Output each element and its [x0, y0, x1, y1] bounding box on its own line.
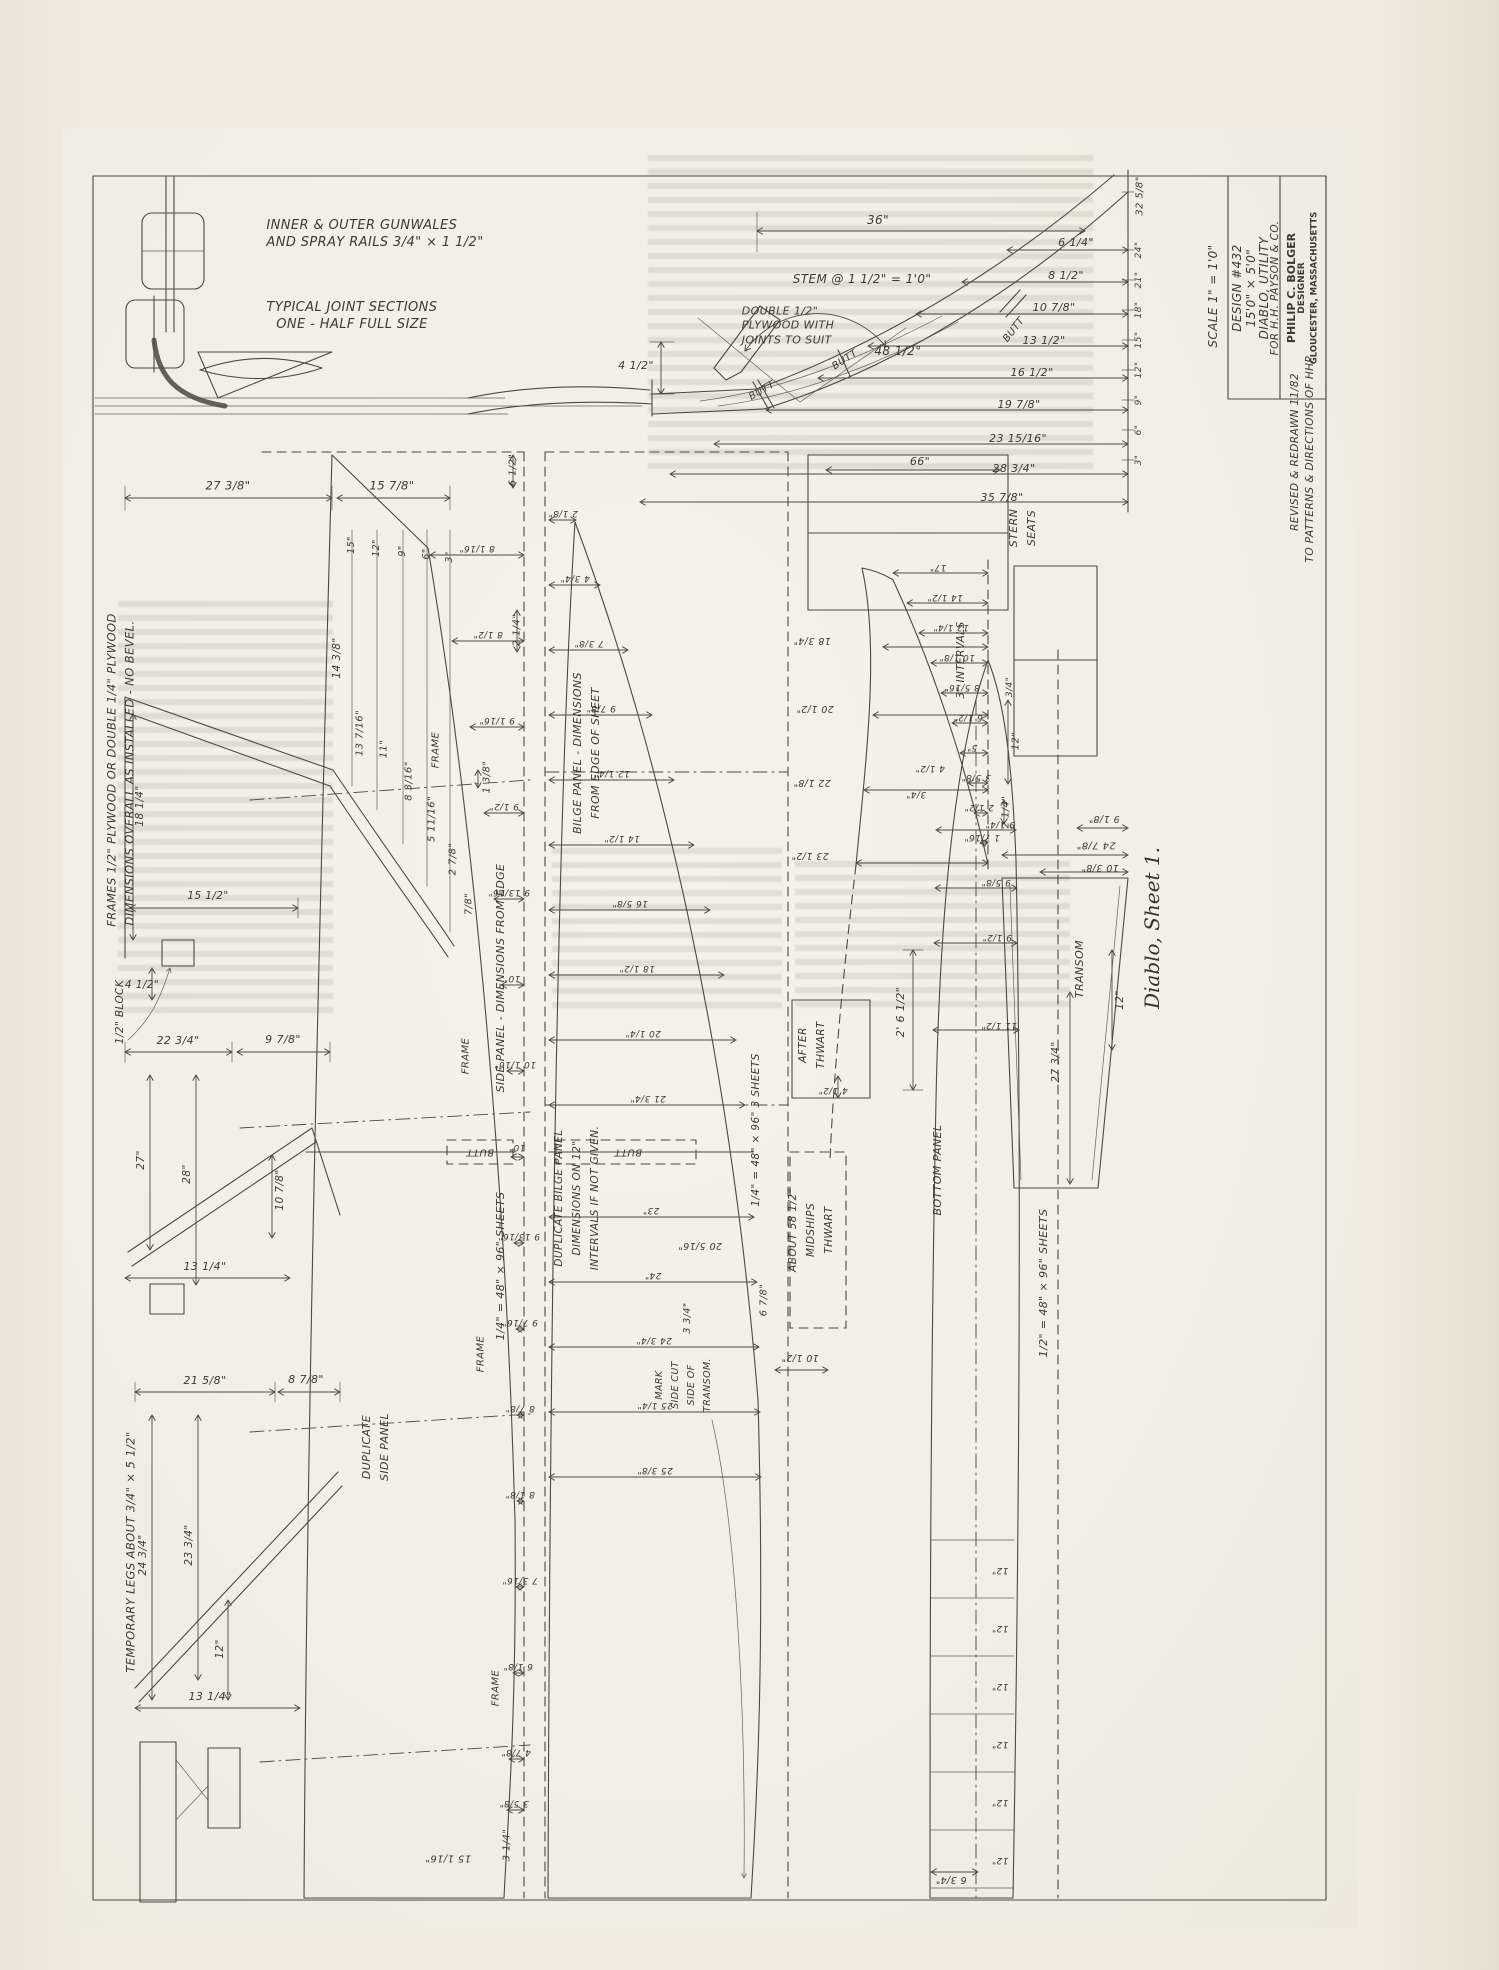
ruler-mark: 6" — [1134, 425, 1146, 436]
figure-caption: Diablo, Sheet 1. — [1140, 847, 1164, 1009]
thwart-label: ABOUT 58 1/2" — [787, 1188, 801, 1272]
dim: 4 1/2" — [125, 979, 159, 993]
dim: 9 7/8" — [265, 1033, 301, 1047]
dim: 10 7/8" — [274, 1169, 288, 1210]
dim: 12" — [992, 1795, 1009, 1807]
dim: 9 1/8" — [1088, 812, 1119, 824]
labels-layer: INNER & OUTER GUNWALES AND SPRAY RAILS 3… — [0, 0, 1499, 1970]
book-page-background: INNER & OUTER GUNWALES AND SPRAY RAILS 3… — [0, 0, 1499, 1970]
dim: 7 3/8" — [574, 636, 604, 648]
dim: 14 3/8" — [331, 637, 345, 678]
panel-label: BILGE PANEL - DIMENSIONS — [571, 672, 585, 834]
dim: 6 7/8" — [758, 1284, 771, 1317]
dim: 10" — [504, 971, 521, 983]
dim: 4 1/2" — [618, 359, 654, 373]
frame-label: FRAME — [475, 1336, 488, 1373]
dim: 24 3/4" — [636, 1333, 672, 1345]
dim: 2 1/4" — [511, 614, 524, 647]
panel-label: SIDE PANEL — [378, 1413, 392, 1481]
dim: 24 3/4" — [137, 1534, 151, 1575]
dim: 4 1/2" — [818, 1083, 848, 1095]
dim: 8 1/16" — [459, 541, 495, 553]
dim: 28" — [181, 1164, 195, 1183]
dim: 28 3/4" — [992, 462, 1035, 476]
dim: 3/4" — [1005, 677, 1017, 697]
dim: 9 13/16" — [488, 885, 530, 897]
dim: 15 1/16" — [425, 1852, 471, 1865]
dim: 2 1/2" — [964, 800, 994, 812]
dim: 5" — [967, 740, 978, 752]
dim: 13 1/2" — [1022, 334, 1065, 348]
butt-label: BUTT — [747, 378, 778, 403]
dim: 12" — [992, 1737, 1009, 1749]
seats-label: STERN — [1007, 509, 1021, 548]
dim: 13 1/4" — [188, 1690, 231, 1704]
dim: 24" — [645, 1268, 662, 1280]
dim: 18 1/4" — [134, 785, 148, 826]
intervals-note: 3" INTERVALS — [955, 621, 969, 698]
plywood-note: DOUBLE 1/2" PLYWOOD WITH JOINTS TO SUIT — [742, 305, 835, 348]
scale-note: SCALE 1" = 1'0" — [1206, 244, 1222, 347]
designer-city: GLOUCESTER, MASSACHUSETTS — [1309, 212, 1320, 364]
ruler-mark: 3" — [1134, 455, 1146, 466]
dim: 6" — [421, 548, 433, 559]
butt-label: BUTT — [830, 347, 861, 373]
transom-label: TRANSOM — [1073, 940, 1087, 998]
dim: 7/8" — [463, 893, 476, 915]
dim: 9 1/16" — [479, 713, 515, 725]
dim: 9 1/2" — [982, 930, 1012, 942]
butt-label: BUTT — [466, 1146, 494, 1159]
ruler-mark: 18" — [1134, 302, 1146, 319]
dim: 5 11/16" — [426, 796, 439, 842]
mark-note: TRANSOM. — [702, 1358, 714, 1412]
dim: 2' 6 1/2" — [894, 987, 908, 1037]
frames-note: FRAMES 1/2" PLYWOOD OR DOUBLE 1/4" PLYWO… — [105, 613, 120, 926]
dim: 14 1/2" — [604, 831, 640, 843]
panel-label: DIMENSIONS ON 12" — [571, 1140, 585, 1255]
dim: 18 1/2" — [619, 961, 655, 973]
ruler-mark: 9" — [1134, 395, 1146, 406]
dim: 12" — [214, 1639, 228, 1658]
revision-note: TO PATTERNS & DIRECTIONS OF HHP. — [1304, 354, 1318, 563]
dim: 6 1/8" — [503, 1659, 533, 1671]
dim: 12" — [992, 1853, 1009, 1865]
dim: 27 3/8" — [206, 479, 251, 494]
frame-label: FRAME — [460, 1038, 473, 1075]
thwart-label: AFTER — [797, 1027, 811, 1063]
dim: 15" — [346, 536, 358, 554]
dim: 3 5/8" — [961, 770, 991, 782]
dim: 10 3/8" — [1081, 861, 1119, 873]
dim: 12" — [1010, 732, 1023, 751]
dim: 16 5/8" — [612, 896, 648, 908]
dim: 9 5/8" — [981, 875, 1011, 887]
dim: 8 3/16" — [403, 761, 416, 800]
dim: 12" — [992, 1563, 1009, 1575]
dim: 35 7/8" — [980, 491, 1023, 505]
dim: 10 1/2" — [781, 1351, 819, 1363]
dim: 32 5/8" — [1134, 176, 1147, 215]
ruler-mark: 15" — [1134, 332, 1146, 349]
ruler-mark: 12" — [1134, 362, 1146, 379]
dim: 3" — [444, 551, 456, 562]
dim: 8 1/8" — [505, 1487, 535, 1499]
dim: 10 7/8" — [1032, 301, 1075, 315]
dim: 24 7/8" — [1076, 839, 1115, 852]
client-line: FOR H.H. PAYSON & CO. — [1269, 221, 1283, 356]
dim: 2 1/8" — [548, 506, 578, 518]
mark-note: MARK — [654, 1370, 666, 1399]
dim: 12" — [992, 1621, 1009, 1633]
dim: 4 3/4" — [560, 571, 590, 583]
dim: 20 1/4" — [625, 1026, 661, 1038]
dim: 3 3/4" — [682, 1302, 694, 1333]
dim: 25 1/4" — [637, 1398, 673, 1410]
thwart-label: MIDSHIPS — [805, 1203, 819, 1257]
dim: 4 1/2" — [915, 761, 945, 773]
dim: 10" — [509, 1140, 526, 1152]
dim: 11 1/2" — [981, 1018, 1017, 1030]
ruler-mark: 24" — [1134, 242, 1146, 259]
panel-label: DUPLICATE BILGE PANEL — [553, 1129, 567, 1266]
dim: 14 1/2" — [927, 590, 963, 602]
dim: 6 1/2" — [507, 454, 520, 487]
dim: 8 1/2" — [1048, 269, 1084, 283]
sheet-size-label: 1/4" = 48" × 96" 3 SHEETS — [750, 1053, 764, 1206]
dim: 8 7/8" — [288, 1373, 324, 1387]
dim: 23 1/2" — [791, 849, 829, 861]
dim: 7 3/16" — [502, 1573, 538, 1585]
dim: 3/4" — [906, 787, 926, 799]
stem-note: STEM @ 1 1/2" = 1'0" — [793, 272, 932, 288]
dim: 11" — [378, 740, 391, 759]
thwart-label: THWART — [815, 1021, 829, 1068]
dim: 6 3/4" — [935, 1873, 966, 1885]
dim: 3 1/4" — [501, 1829, 514, 1862]
seats-label: SEATS — [1025, 510, 1039, 546]
dim: 2 7/8" — [447, 843, 460, 876]
dim: 8 1/2" — [473, 627, 503, 639]
dim: 9 7/8" — [586, 701, 616, 713]
dim: 12" — [1114, 990, 1128, 1009]
gunwale-note: INNER & OUTER GUNWALES AND SPRAY RAILS 3… — [266, 218, 483, 252]
frames-note: DIMENSIONS OVERALL AS INSTALLED - NO BEV… — [123, 620, 138, 925]
butt-label: BUTT — [614, 1146, 642, 1159]
dim: 16 1/2" — [1010, 366, 1053, 380]
dim: 23 3/4" — [183, 1524, 197, 1565]
frame-label: FRAME — [430, 732, 443, 769]
panel-label: INTERVALS IF NOT GIVEN. — [589, 1126, 603, 1271]
dim: 6 1/4" — [1058, 236, 1094, 250]
dim: 15 1/2" — [187, 890, 228, 904]
dim: 4 7/8" — [501, 1745, 531, 1757]
dim: 19 7/8" — [997, 398, 1040, 412]
dim: 22 1/8" — [793, 776, 831, 788]
sheet-size-label: 1/2" = 48" × 96" SHEETS — [1037, 1209, 1051, 1358]
dim: 17" — [930, 560, 947, 572]
dim: 15 7/8" — [370, 479, 415, 494]
dim: 12" — [371, 539, 383, 557]
dim: 9 1/2" — [489, 799, 519, 811]
thwart-label: THWART — [823, 1206, 837, 1253]
dim: 23" — [643, 1203, 660, 1215]
dim: 1 3/8" — [481, 761, 494, 794]
dim: 9 7/16" — [502, 1315, 538, 1327]
dim: 22 3/4" — [156, 1034, 199, 1048]
stem-angle: 48 1/2° — [874, 344, 921, 360]
mark-note: SIDE OF — [686, 1365, 698, 1406]
dim: 13 7/16" — [354, 710, 367, 756]
ruler-mark: 21" — [1134, 272, 1146, 289]
dim: 20 5/16" — [678, 1239, 722, 1251]
dim: 10 1/16" — [494, 1057, 536, 1069]
panel-label: DUPLICATE — [360, 1415, 374, 1479]
dim: 66" — [910, 455, 930, 469]
dim: 36" — [867, 213, 889, 229]
dim: 21 3/4" — [630, 1091, 666, 1103]
dim: 12 1/4" — [594, 766, 630, 778]
dim: 9" — [397, 545, 409, 556]
scanned-book-page: { "document": { "caption": "Diablo, Shee… — [0, 0, 1499, 1970]
dim: 13 1/4" — [183, 1260, 226, 1274]
dim: 27" — [135, 1150, 149, 1169]
dim: 25 3/8" — [637, 1463, 673, 1475]
dim: 20 1/2" — [796, 702, 834, 714]
dim: 6 1/2" — [953, 710, 983, 722]
dim: 21 5/8" — [183, 1374, 226, 1388]
dim: 12" — [992, 1679, 1009, 1691]
designer-role: DESIGNER — [1297, 262, 1309, 313]
dim: 3 5/8" — [499, 1796, 529, 1808]
revision-note: REVISED & REDRAWN 11/82 — [1289, 373, 1303, 531]
dim: 9 1/4" — [985, 817, 1015, 829]
joint-sections-note: TYPICAL JOINT SECTIONS ONE - HALF FULL S… — [267, 300, 438, 334]
dim: 27 3/4" — [1050, 1041, 1064, 1082]
dim: 8 7/8" — [505, 1401, 535, 1413]
dim: 9 13/16" — [498, 1229, 540, 1241]
dim: 18 3/4" — [793, 634, 831, 646]
dim: 23 15/16" — [989, 432, 1047, 446]
frame-label: FRAME — [490, 1670, 503, 1707]
panel-label: BOTTOM PANEL — [931, 1124, 945, 1215]
dim: 1 7/16" — [964, 830, 1000, 842]
